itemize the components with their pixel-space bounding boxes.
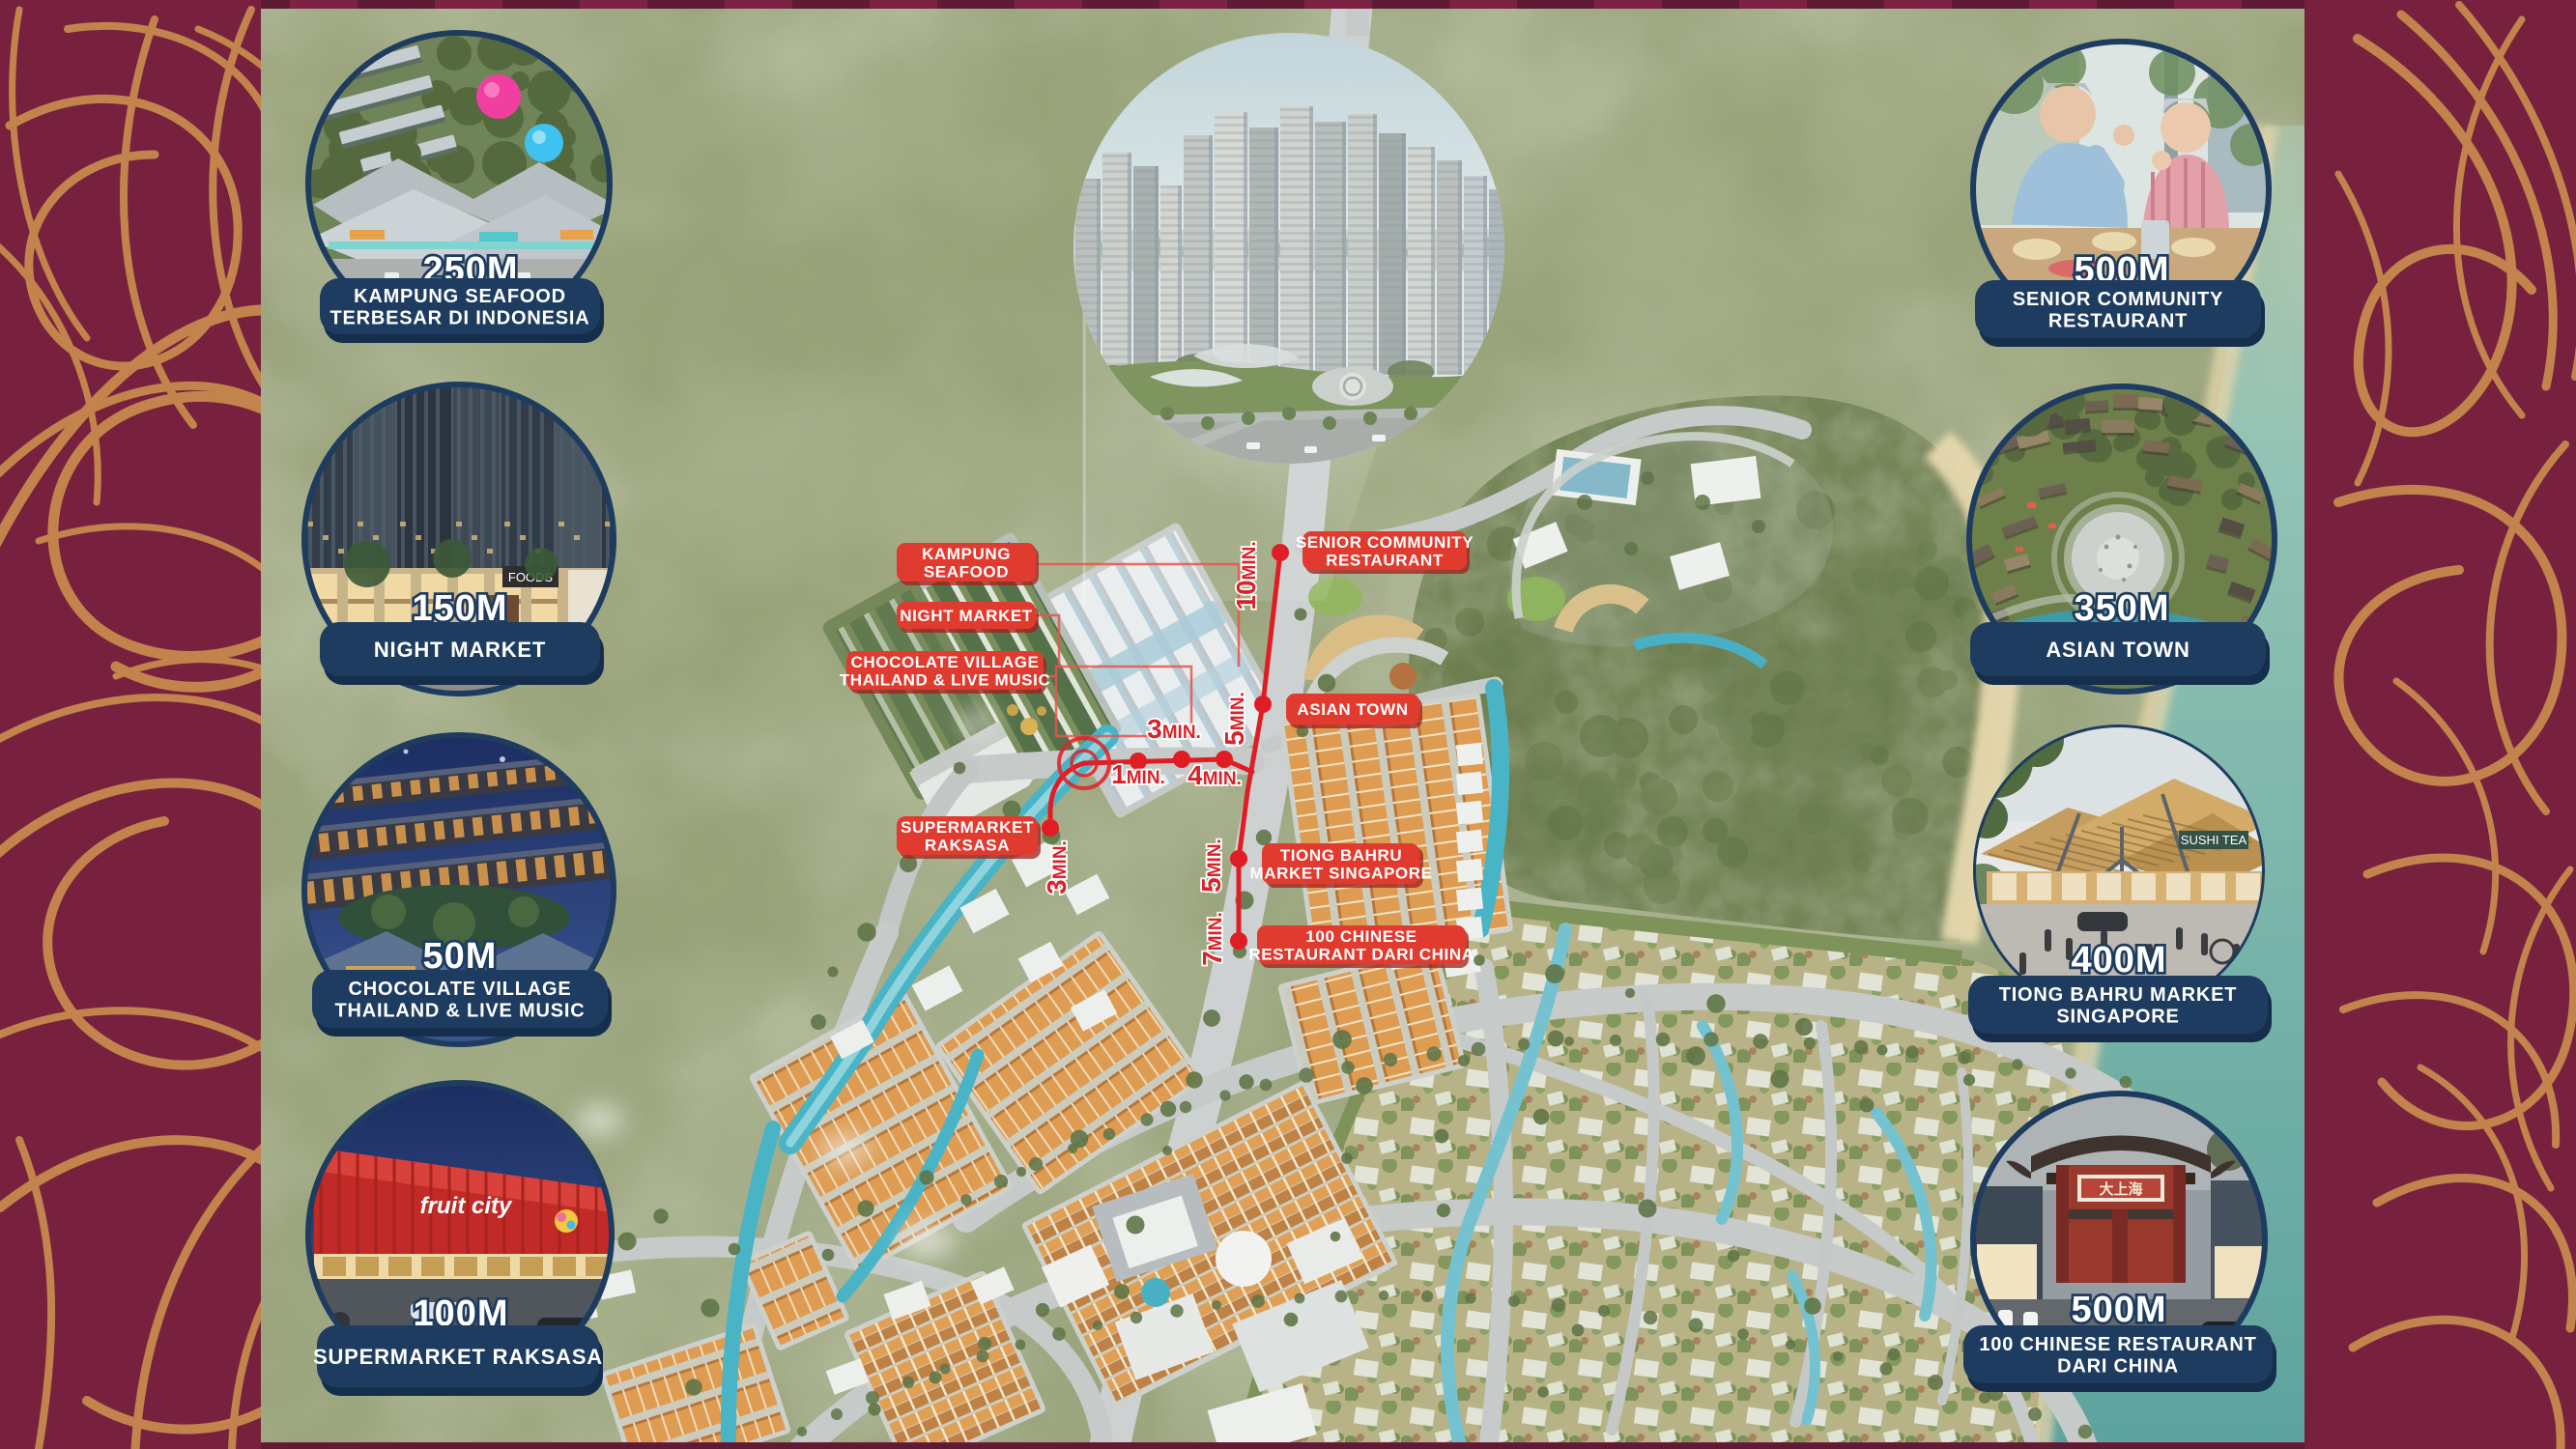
svg-text:SENIOR COMMUNITY: SENIOR COMMUNITY: [2013, 289, 2223, 310]
svg-text:THAILAND & LIVE MUSIC: THAILAND & LIVE MUSIC: [840, 671, 1050, 690]
svg-text:THAILAND & LIVE MUSIC: THAILAND & LIVE MUSIC: [334, 1000, 585, 1021]
svg-text:RESTAURANT DARI CHINA: RESTAURANT DARI CHINA: [1248, 946, 1474, 964]
svg-text:DARI CHINA: DARI CHINA: [2057, 1355, 2179, 1377]
svg-text:TERBESAR DI INDONESIA: TERBESAR DI INDONESIA: [329, 307, 589, 328]
svg-text:SEAFOOD: SEAFOOD: [924, 563, 1009, 582]
svg-text:500M: 500M: [2071, 1290, 2166, 1330]
svg-text:NIGHT MARKET: NIGHT MARKET: [900, 607, 1033, 625]
svg-text:SINGAPORE: SINGAPORE: [2056, 1006, 2179, 1027]
svg-text:SENIOR COMMUNITY: SENIOR COMMUNITY: [1296, 533, 1474, 552]
svg-text:fruit city: fruit city: [420, 1193, 513, 1219]
svg-text:TIONG BAHRU MARKET: TIONG BAHRU MARKET: [1999, 984, 2238, 1006]
svg-text:KAMPUNG SEAFOOD: KAMPUNG SEAFOOD: [354, 286, 566, 307]
svg-text:CHOCOLATE VILLAGE: CHOCOLATE VILLAGE: [851, 653, 1040, 671]
svg-text:SUPERMARKET: SUPERMARKET: [901, 818, 1034, 837]
svg-text:SUSHI TEA: SUSHI TEA: [2181, 833, 2247, 847]
svg-text:NIGHT MARKET: NIGHT MARKET: [374, 638, 546, 662]
svg-text:RESTAURANT: RESTAURANT: [1326, 552, 1444, 570]
svg-text:CHOCOLATE VILLAGE: CHOCOLATE VILLAGE: [348, 979, 571, 1000]
svg-text:TIONG BAHRU: TIONG BAHRU: [1280, 846, 1403, 865]
svg-text:RAKSASA: RAKSASA: [925, 837, 1010, 855]
svg-text:100 CHINESE RESTAURANT: 100 CHINESE RESTAURANT: [1979, 1334, 2256, 1355]
svg-text:MARKET SINGAPORE: MARKET SINGAPORE: [1249, 865, 1432, 883]
svg-text:RESTAURANT: RESTAURANT: [2048, 310, 2188, 331]
svg-text:100 CHINESE: 100 CHINESE: [1305, 927, 1417, 946]
svg-text:大上海: 大上海: [2099, 1180, 2142, 1198]
svg-text:ASIAN TOWN: ASIAN TOWN: [2046, 638, 2190, 662]
svg-text:SUPERMARKET RAKSASA: SUPERMARKET RAKSASA: [313, 1345, 603, 1369]
svg-text:400M: 400M: [2071, 940, 2166, 980]
svg-text:KAMPUNG: KAMPUNG: [922, 545, 1011, 563]
svg-text:ASIAN TOWN: ASIAN TOWN: [1297, 700, 1408, 719]
